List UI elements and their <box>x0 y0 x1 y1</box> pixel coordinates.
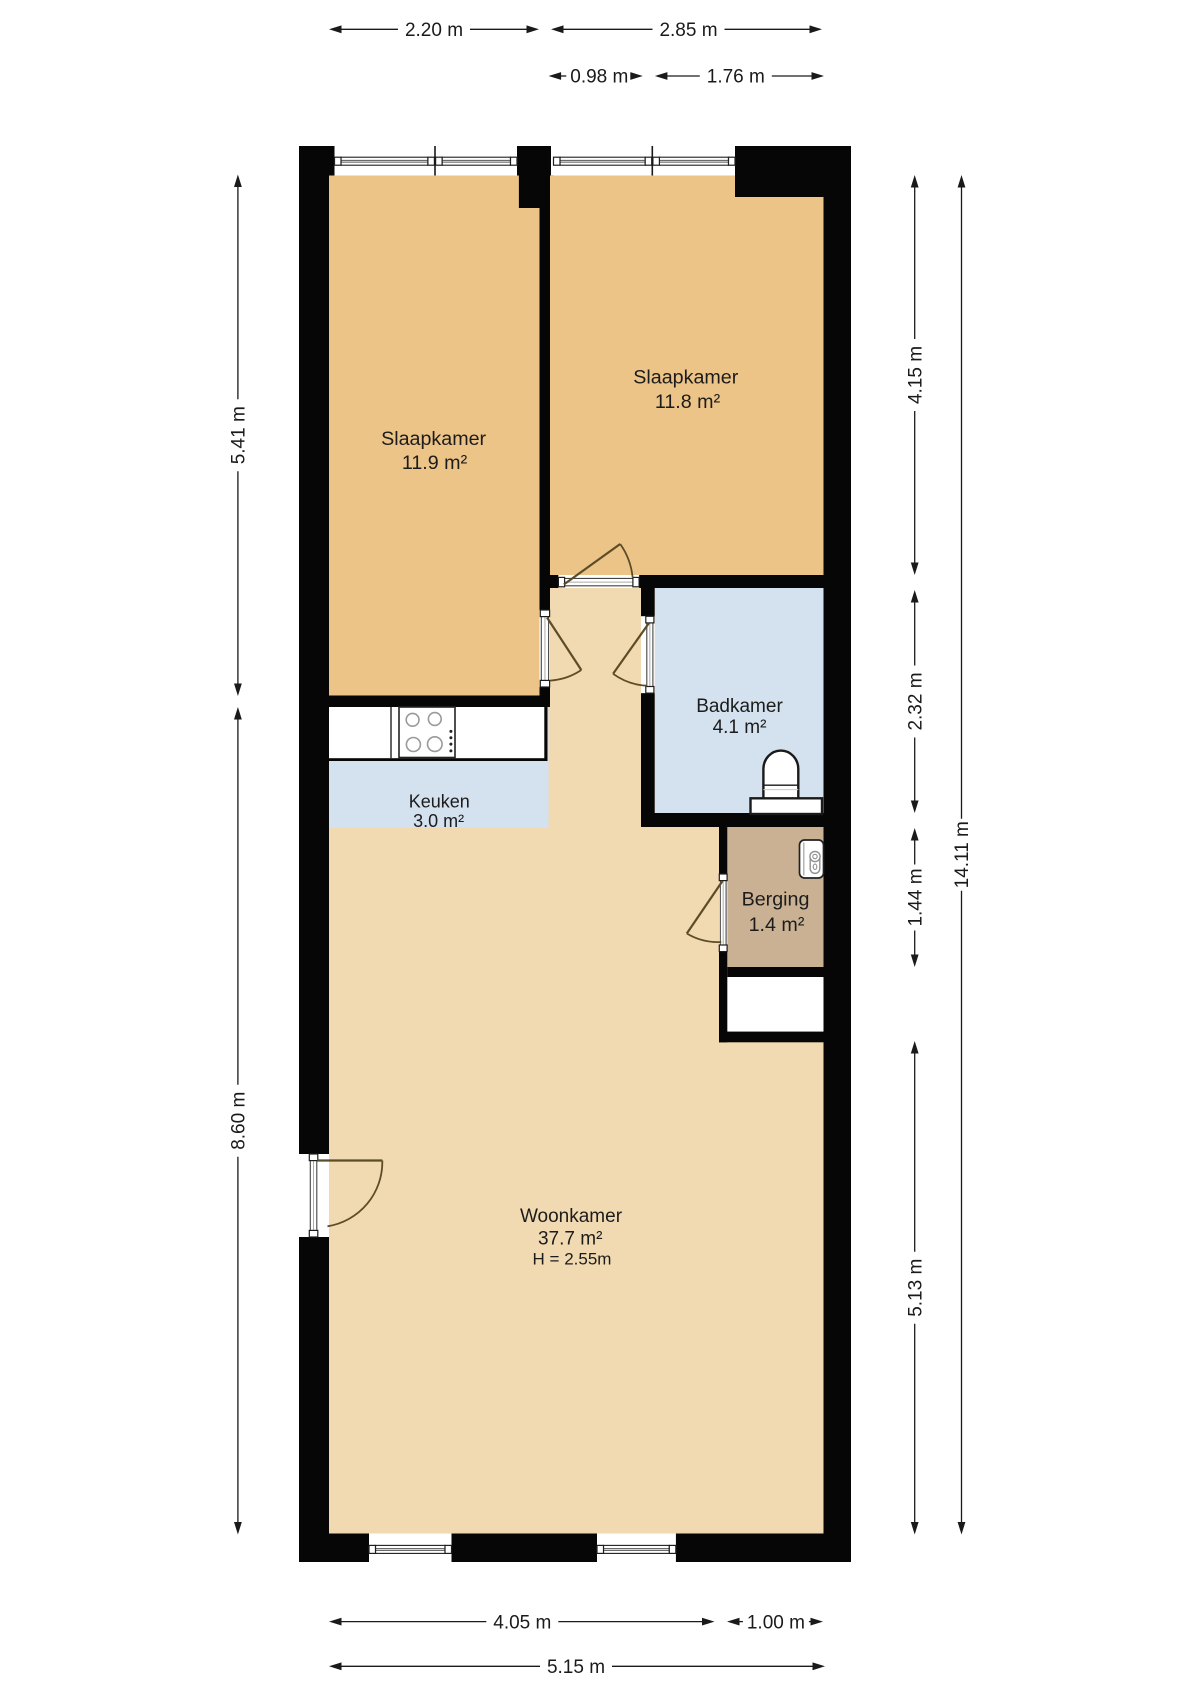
svg-text:11.8 m²: 11.8 m² <box>655 391 721 413</box>
svg-text:37.7 m²: 37.7 m² <box>538 1229 602 1250</box>
svg-text:4.1 m²: 4.1 m² <box>713 717 767 738</box>
svg-text:Slaapkamer: Slaapkamer <box>633 366 738 388</box>
svg-text:Berging: Berging <box>742 889 810 911</box>
svg-text:1.4 m²: 1.4 m² <box>749 914 805 936</box>
svg-text:11.9 m²: 11.9 m² <box>402 452 468 474</box>
svg-text:1.44 m: 1.44 m <box>905 868 926 926</box>
svg-text:2.20 m: 2.20 m <box>405 20 463 41</box>
svg-text:1.00 m: 1.00 m <box>747 1612 805 1633</box>
svg-text:5.15 m: 5.15 m <box>547 1657 605 1678</box>
svg-text:3.0 m²: 3.0 m² <box>413 811 464 831</box>
svg-text:5.41 m: 5.41 m <box>229 406 250 464</box>
svg-text:4.15 m: 4.15 m <box>905 346 926 404</box>
svg-text:2.32 m: 2.32 m <box>905 672 926 730</box>
svg-text:Slaapkamer: Slaapkamer <box>381 428 486 450</box>
svg-text:8.60 m: 8.60 m <box>229 1092 250 1150</box>
svg-text:Keuken: Keuken <box>409 792 470 812</box>
svg-text:2.85 m: 2.85 m <box>659 20 717 41</box>
svg-text:5.13 m: 5.13 m <box>905 1259 926 1317</box>
svg-text:Badkamer: Badkamer <box>696 696 783 717</box>
svg-text:1.76 m: 1.76 m <box>707 67 765 88</box>
svg-text:Woonkamer: Woonkamer <box>520 1206 623 1227</box>
svg-text:0.98 m: 0.98 m <box>570 67 628 88</box>
svg-text:4.05 m: 4.05 m <box>493 1612 551 1633</box>
svg-text:14.11 m: 14.11 m <box>952 821 973 888</box>
svg-text:H = 2.55m: H = 2.55m <box>533 1249 612 1268</box>
